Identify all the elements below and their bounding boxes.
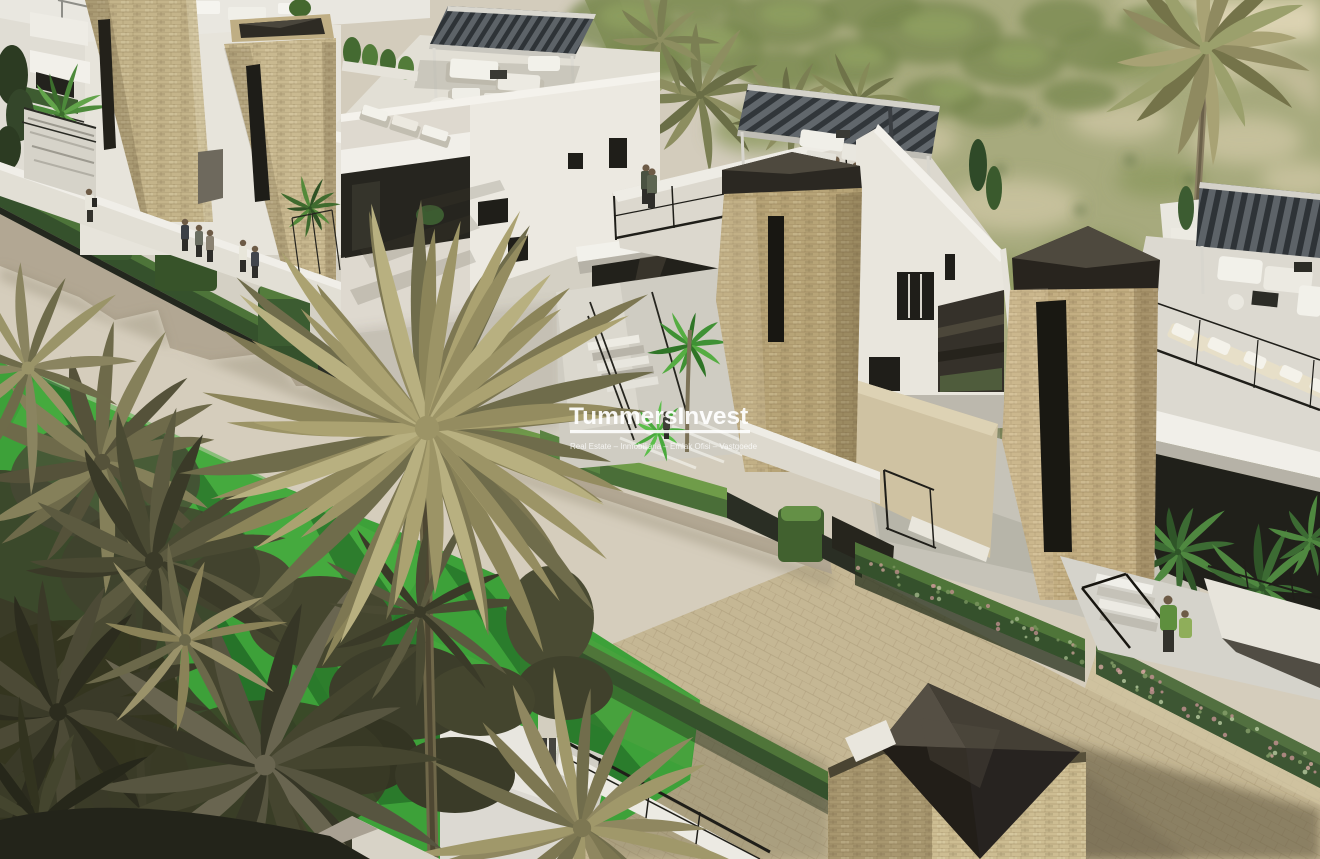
svg-text:TummersInvest: TummersInvest bbox=[569, 403, 748, 430]
svg-text:Real Estate – Inmobiliaria – E: Real Estate – Inmobiliaria – Emlak Ofisi… bbox=[570, 442, 758, 451]
